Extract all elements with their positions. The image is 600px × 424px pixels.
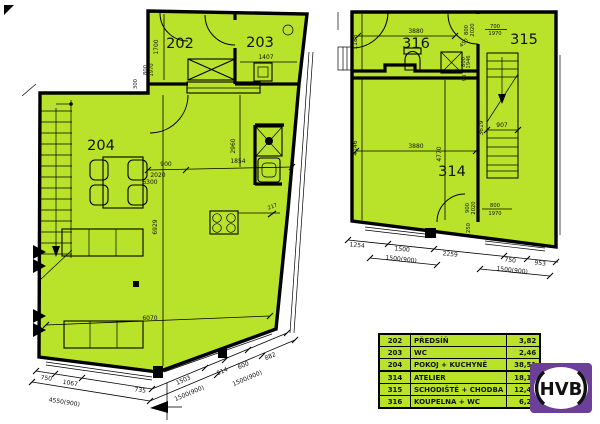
dim-label: 1500 <box>394 245 410 254</box>
window-left <box>338 12 352 70</box>
dim-label: 882 <box>264 351 277 362</box>
dim-label: 2259 <box>442 250 458 259</box>
legend-name: KOUPELNA + WC <box>411 396 507 409</box>
dim-label: 700 <box>490 24 500 30</box>
dim-label: 6300 <box>142 179 157 186</box>
legend-num: 316 <box>379 396 411 409</box>
dim-label: 1500(900) <box>496 265 528 275</box>
dim-label: 1854 <box>230 158 245 165</box>
legend-num: 203 <box>379 347 411 359</box>
legend-row: 315 SCHODIŠTĚ + CHODBA 12,48 <box>379 384 540 396</box>
switch-dot <box>133 281 139 287</box>
legend-area: 3,82 <box>507 334 541 347</box>
dim-label: 6929 <box>152 219 159 234</box>
dim-label: 600 <box>237 360 250 371</box>
dim-label: 1500(900) <box>232 369 264 388</box>
dim-label: 1970 <box>488 31 501 37</box>
dim-label: 1254 <box>349 241 365 250</box>
legend-name: PŘEDSÍŇ <box>411 334 507 347</box>
dim-label: 514 <box>216 366 229 377</box>
dim-label: 1500(900) <box>174 384 206 403</box>
legend-table: 202 PŘEDSÍŇ 3,82 203 WC 2,46 204 POKOJ +… <box>378 333 541 409</box>
dim-label: 1970 <box>149 63 155 76</box>
dim-label: 1970 <box>488 211 501 217</box>
dim-label: 750 <box>40 374 53 383</box>
dim-label: 3880 <box>408 143 423 150</box>
dim-label: 1500(900) <box>385 254 417 264</box>
dim-label: 6070 <box>142 315 157 322</box>
floor-plan-sheet: 202 203 204 1700 800 1970 300 1407 900 1… <box>0 0 600 424</box>
dim-label: 300 <box>133 79 139 89</box>
dim-label: 750 <box>504 256 516 264</box>
legend-row: 202 PŘEDSÍŇ 3,82 <box>379 334 540 347</box>
dim-label: 2020 <box>471 201 477 214</box>
legend-name: SCHODIŠTĚ + CHODBA <box>411 384 507 396</box>
legend-row: 316 KOUPELNA + WC 6,28 <box>379 396 540 409</box>
room-label-202: 202 <box>166 36 194 52</box>
room-label-203: 203 <box>246 35 274 51</box>
dim-label: 2960 <box>230 138 237 153</box>
logo-text: HVB <box>540 379 583 400</box>
dim-label: 1188 <box>352 34 359 49</box>
break-mark <box>22 84 36 96</box>
dim-label: 1067 <box>62 379 78 388</box>
dim-label: 735 <box>134 386 146 394</box>
corner-mark <box>4 5 14 15</box>
dim-label: 2020 <box>150 172 165 179</box>
legend-row: 314 ATELIER 18,15 <box>379 371 540 384</box>
legend-name: WC <box>411 347 507 359</box>
dim-label: 3880 <box>408 28 423 35</box>
legend-name: POKOJ + KUCHYNĚ <box>411 359 507 372</box>
dim-label: 3619 <box>478 120 485 135</box>
left-plan-outline <box>39 11 307 372</box>
section-arrow <box>150 401 168 413</box>
right-floor-plan: 316 315 314 3880 3880 1188 4146 907 3619… <box>338 12 560 279</box>
dim-label: 1946 <box>466 55 472 68</box>
room-label-204: 204 <box>87 138 115 154</box>
left-floor-plan: 202 203 204 1700 800 1970 300 1407 900 1… <box>22 11 313 420</box>
dim-label: 1700 <box>153 39 160 54</box>
hvb-logo: HVB <box>530 363 592 413</box>
legend-row: 204 POKOJ + KUCHYNĚ 38,51 <box>379 359 540 372</box>
room-label-316: 316 <box>402 36 430 52</box>
dim-label: 900 <box>160 161 172 168</box>
room-label-315: 315 <box>510 32 538 48</box>
legend-name: ATELIER <box>411 371 507 384</box>
dim-label: 4550(900) <box>48 397 80 409</box>
dim-label: 90 <box>462 75 468 82</box>
legend-row: 203 WC 2,46 <box>379 347 540 359</box>
dim-label: 800 <box>490 203 500 209</box>
room-label-314: 314 <box>438 164 466 180</box>
legend-num: 315 <box>379 384 411 396</box>
legend-area: 2,46 <box>507 347 541 359</box>
dim-label: 250 <box>466 223 472 233</box>
legend-num: 202 <box>379 334 411 347</box>
dim-label: 1503 <box>175 374 192 386</box>
dim-label: 4146 <box>352 140 359 155</box>
legend-num: 314 <box>379 371 411 384</box>
dim-label: 907 <box>496 122 508 129</box>
dim-label: 1407 <box>258 54 273 61</box>
legend-num: 204 <box>379 359 411 372</box>
dim-label: 953 <box>534 259 546 267</box>
dim-label: 2020 <box>470 23 476 36</box>
dim-label: 4770 <box>436 146 443 161</box>
